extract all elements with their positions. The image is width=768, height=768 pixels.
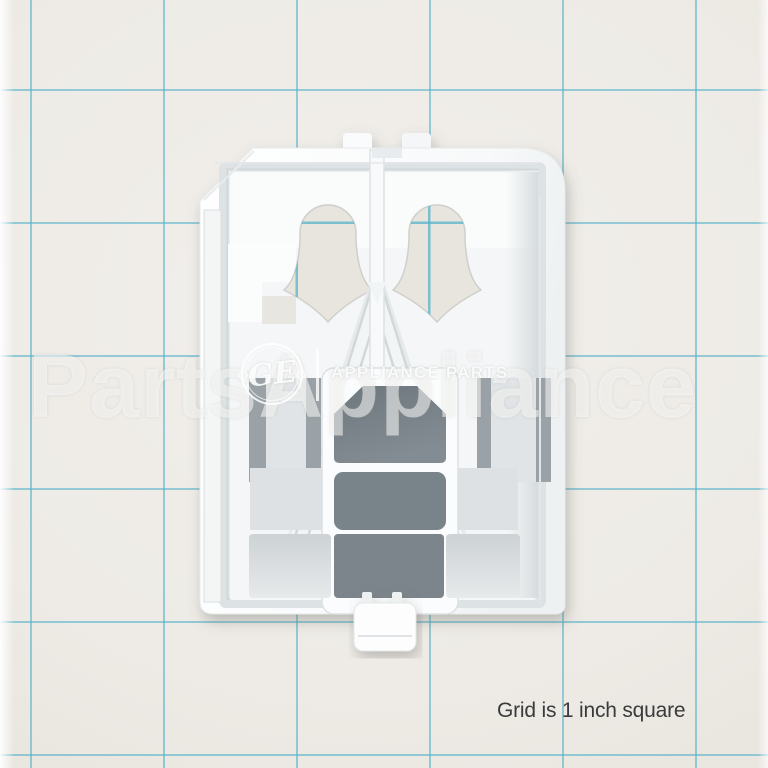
grid-scale-caption: Grid is 1 inch square [497,699,685,723]
product-photo: PartsAppliance GE APPLIANCE PARTS Grid i… [0,0,768,768]
ge-logo-monogram: GE [246,354,298,394]
opening-bottom-center [334,534,444,598]
opening-bottom-left [249,534,331,598]
opening-bottom-right [446,534,520,598]
watermark-separator-bar [316,349,319,401]
part-bottom-row [249,534,520,598]
opening-middle [334,472,446,530]
ge-logo: GE [241,343,303,405]
watermark-text: PartsAppliance [28,342,697,432]
watermark-brand-label: APPLIANCE PARTS [331,363,508,383]
